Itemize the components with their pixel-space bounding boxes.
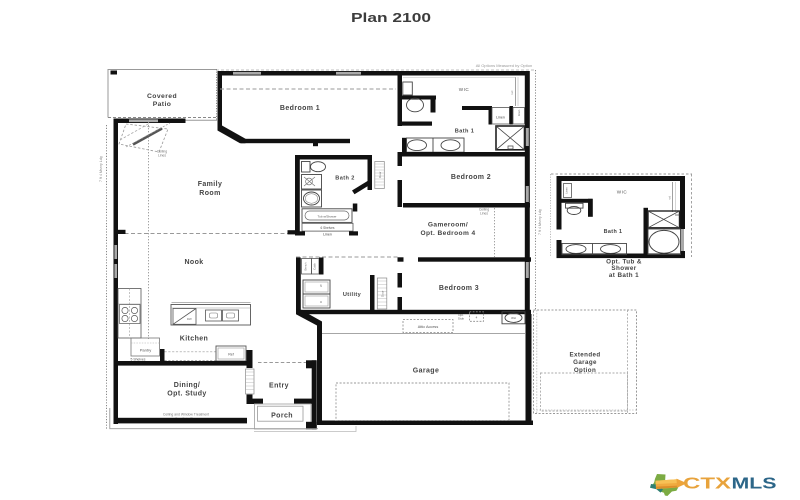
svg-text:DW: DW: [187, 317, 192, 321]
svg-text:Dining/: Dining/: [174, 382, 201, 389]
svg-text:Attic Access: Attic Access: [418, 325, 439, 329]
svg-text:Porch: Porch: [271, 413, 293, 420]
svg-text:Garage: Garage: [573, 359, 597, 366]
svg-text:Linen: Linen: [565, 187, 569, 194]
svg-text:linen: linen: [517, 109, 521, 116]
svg-text:Pantry: Pantry: [140, 348, 152, 353]
svg-text:Door: Door: [381, 290, 385, 297]
svg-text:7 ft 4 Msnry Ldg: 7 ft 4 Msnry Ldg: [538, 209, 542, 235]
svg-text:Family: Family: [198, 181, 223, 188]
svg-text:Room: Room: [199, 190, 220, 197]
svg-text:WH: WH: [511, 316, 516, 320]
svg-text:Utility: Utility: [343, 292, 362, 298]
svg-text:WIC: WIC: [617, 190, 628, 195]
svg-text:Covered: Covered: [147, 93, 177, 100]
svg-text:Bath 1: Bath 1: [455, 129, 475, 135]
svg-text:Door: Door: [378, 171, 382, 178]
svg-text:MLS: MLS: [732, 476, 777, 493]
svg-text:Linen: Linen: [496, 115, 505, 119]
svg-text:Option: Option: [574, 367, 596, 374]
svg-text:Bath 1: Bath 1: [604, 229, 623, 235]
svg-text:5 Shelves: 5 Shelves: [131, 357, 146, 361]
svg-text:7 ft 4 Msnry Ldg: 7 ft 4 Msnry Ldg: [99, 156, 103, 182]
svg-text:Bedroom 3: Bedroom 3: [439, 285, 479, 292]
svg-text:rod: rod: [510, 90, 514, 95]
svg-text:Extended: Extended: [569, 352, 600, 359]
svg-text:Opt. Study: Opt. Study: [167, 391, 206, 398]
svg-text:D: D: [319, 301, 323, 303]
svg-text:Bench: Bench: [304, 262, 308, 270]
svg-text:Tub w/Shower: Tub w/Shower: [317, 215, 336, 219]
svg-text:Gameroom/: Gameroom/: [428, 222, 468, 229]
svg-text:Lines: Lines: [158, 154, 166, 158]
svg-text:Plan 2100: Plan 2100: [351, 10, 431, 25]
svg-text:Nook: Nook: [184, 259, 203, 266]
svg-text:W: W: [319, 284, 323, 287]
svg-text:Bedroom 1: Bedroom 1: [280, 105, 320, 112]
svg-text:Kitchen: Kitchen: [180, 336, 208, 343]
svg-text:Garage: Garage: [413, 368, 440, 375]
svg-text:Cubb: Cubb: [313, 263, 317, 270]
svg-text:Linen: Linen: [323, 232, 332, 236]
svg-text:Opt. Bedroom 4: Opt. Bedroom 4: [420, 230, 475, 237]
svg-text:Stub: Stub: [458, 317, 465, 321]
svg-text:Entry: Entry: [269, 383, 289, 390]
svg-text:Patio: Patio: [153, 101, 172, 108]
svg-text:at Bath 1: at Bath 1: [609, 272, 639, 279]
svg-text:rod: rod: [668, 196, 672, 200]
svg-text:Bath 2: Bath 2: [335, 176, 355, 182]
svg-text:6 Shelves: 6 Shelves: [321, 226, 335, 230]
svg-text:Bedroom 2: Bedroom 2: [451, 174, 491, 181]
svg-text:Ref: Ref: [228, 353, 234, 357]
svg-text:All Options Measured by Option: All Options Measured by Option: [476, 63, 532, 68]
svg-text:Lines: Lines: [480, 212, 488, 216]
svg-text:CTX: CTX: [683, 476, 732, 493]
svg-text:WIC: WIC: [459, 87, 470, 92]
